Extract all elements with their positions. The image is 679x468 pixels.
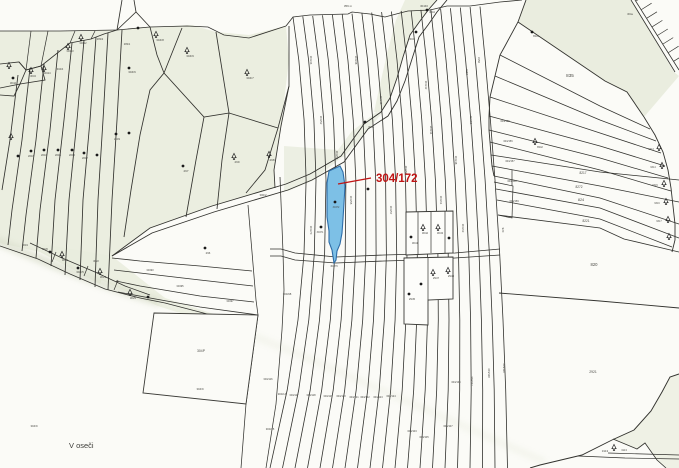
svg-text:3021: 3021	[62, 258, 69, 262]
svg-text:304/9: 304/9	[31, 424, 38, 428]
svg-text:3113: 3113	[602, 449, 609, 453]
svg-text:30413: 30413	[66, 49, 74, 53]
svg-text:3043: 3043	[437, 231, 444, 235]
svg-text:283/1: 283/1	[124, 42, 131, 46]
svg-text:284/4: 284/4	[41, 154, 48, 157]
svg-text:284/6: 284/6	[69, 154, 76, 157]
svg-text:30495: 30495	[176, 284, 184, 288]
svg-text:304/136: 304/136	[451, 380, 461, 384]
svg-text:30472: 30472	[333, 206, 340, 209]
svg-text:304/121: 304/121	[349, 395, 359, 399]
svg-text:304/122: 304/122	[360, 395, 370, 399]
svg-text:304/48: 304/48	[454, 156, 458, 165]
svg-text:3044: 3044	[429, 10, 435, 14]
svg-text:284/7: 284/7	[82, 157, 89, 160]
svg-text:304/118: 304/118	[306, 393, 316, 397]
svg-text:3041: 3041	[412, 241, 419, 245]
svg-text:304/57: 304/57	[389, 206, 393, 215]
svg-text:2945: 2945	[409, 297, 416, 301]
svg-text:3049: 3049	[409, 37, 415, 41]
svg-text:304/9: 304/9	[197, 387, 204, 391]
svg-text:299: 299	[234, 160, 239, 164]
svg-text:304/14: 304/14	[278, 392, 287, 396]
svg-text:304/50: 304/50	[469, 116, 473, 125]
svg-text:3042: 3042	[10, 81, 17, 85]
svg-text:283/2: 283/2	[97, 37, 104, 41]
svg-text:304/4: 304/4	[57, 67, 64, 71]
svg-text:2948: 2948	[448, 274, 455, 278]
svg-text:304/63: 304/63	[461, 224, 465, 233]
svg-text:304/103: 304/103	[407, 429, 417, 433]
svg-text:30471: 30471	[317, 231, 324, 234]
svg-text:2921: 2921	[589, 370, 597, 374]
svg-text:8272: 8272	[575, 185, 582, 189]
svg-text:304/157: 304/157	[505, 159, 515, 163]
svg-text:920: 920	[501, 228, 505, 233]
svg-text:304/53: 304/53	[335, 151, 339, 160]
svg-text:8345: 8345	[533, 34, 539, 38]
svg-text:3022: 3022	[93, 259, 99, 263]
svg-text:2947: 2947	[433, 276, 440, 280]
svg-text:304/123: 304/123	[373, 395, 383, 399]
svg-text:297: 297	[183, 169, 188, 173]
svg-text:3025: 3025	[130, 296, 137, 300]
svg-text:3156: 3156	[477, 57, 481, 64]
svg-text:304/138: 304/138	[487, 368, 491, 378]
svg-text:304a: 304a	[627, 12, 633, 16]
svg-text:304/124: 304/124	[386, 394, 396, 398]
svg-text:304/172: 304/172	[376, 173, 418, 185]
svg-text:8217: 8217	[579, 171, 586, 175]
svg-text:304/55: 304/55	[349, 196, 353, 205]
svg-text:304/44: 304/44	[429, 126, 433, 135]
svg-text:304/120: 304/120	[336, 394, 346, 398]
svg-text:304/117: 304/117	[289, 393, 299, 397]
svg-text:304/61: 304/61	[439, 196, 443, 205]
svg-text:304/98: 304/98	[283, 292, 292, 296]
svg-text:6317: 6317	[656, 220, 662, 223]
svg-text:304/36: 304/36	[309, 56, 313, 65]
svg-text:3157: 3157	[465, 69, 469, 76]
svg-text:30412: 30412	[79, 41, 87, 45]
svg-text:304/155: 304/155	[500, 119, 510, 123]
svg-text:304/159: 304/159	[509, 199, 519, 203]
svg-text:304/42: 304/42	[424, 81, 428, 90]
svg-text:6315: 6315	[652, 184, 658, 187]
svg-text:304/105: 304/105	[419, 435, 429, 439]
svg-text:296: 296	[206, 251, 211, 255]
svg-text:298: 298	[269, 158, 274, 162]
svg-text:6314: 6314	[650, 166, 656, 169]
svg-text:304/156: 304/156	[503, 139, 513, 143]
svg-text:284/5: 284/5	[55, 154, 62, 157]
svg-text:304/139: 304/139	[502, 363, 506, 373]
svg-text:359 m: 359 m	[344, 4, 353, 8]
svg-text:3042: 3042	[422, 231, 429, 235]
svg-text:304/5: 304/5	[76, 270, 84, 274]
svg-text:304/40: 304/40	[379, 96, 383, 105]
svg-text:304/9: 304/9	[186, 54, 194, 58]
svg-text:304/137: 304/137	[470, 376, 474, 386]
svg-text:304/107: 304/107	[443, 424, 453, 428]
svg-text:3113: 3113	[621, 448, 627, 452]
svg-text:820: 820	[591, 262, 599, 267]
svg-text:304/158: 304/158	[507, 179, 517, 183]
svg-text:284/3: 284/3	[28, 155, 35, 158]
svg-text:8221: 8221	[582, 219, 589, 223]
svg-text:6313: 6313	[648, 148, 654, 151]
svg-text:304/70: 304/70	[309, 226, 313, 235]
svg-text:304P: 304P	[197, 349, 206, 353]
svg-text:304/52: 304/52	[319, 116, 323, 125]
svg-text:V oseči: V oseči	[69, 441, 94, 450]
svg-text:6316: 6316	[654, 202, 660, 205]
svg-text:3043: 3043	[30, 74, 36, 78]
svg-text:304/6: 304/6	[128, 70, 136, 74]
svg-text:30497: 30497	[226, 299, 234, 303]
svg-text:304/116: 304/116	[263, 377, 273, 381]
svg-text:824: 824	[578, 198, 584, 202]
svg-text:3046: 3046	[368, 125, 374, 129]
svg-text:3019: 3019	[22, 243, 28, 247]
svg-text:304/7: 304/7	[246, 76, 254, 80]
svg-text:304/76: 304/76	[330, 265, 338, 268]
svg-text:3023: 3023	[100, 275, 107, 279]
svg-text:304/15: 304/15	[266, 427, 275, 431]
svg-text:8342: 8342	[537, 145, 543, 149]
svg-text:30414: 30414	[43, 71, 51, 75]
svg-text:304/38: 304/38	[354, 56, 358, 65]
svg-text:284/9: 284/9	[114, 138, 121, 141]
svg-text:30446: 30446	[420, 4, 428, 8]
svg-text:304/8: 304/8	[156, 38, 164, 42]
svg-text:30493: 30493	[146, 268, 154, 272]
svg-text:3020: 3020	[42, 247, 48, 251]
svg-text:304/119: 304/119	[323, 394, 333, 398]
svg-text:835: 835	[566, 73, 574, 78]
svg-text:300/2: 300/2	[260, 193, 267, 197]
